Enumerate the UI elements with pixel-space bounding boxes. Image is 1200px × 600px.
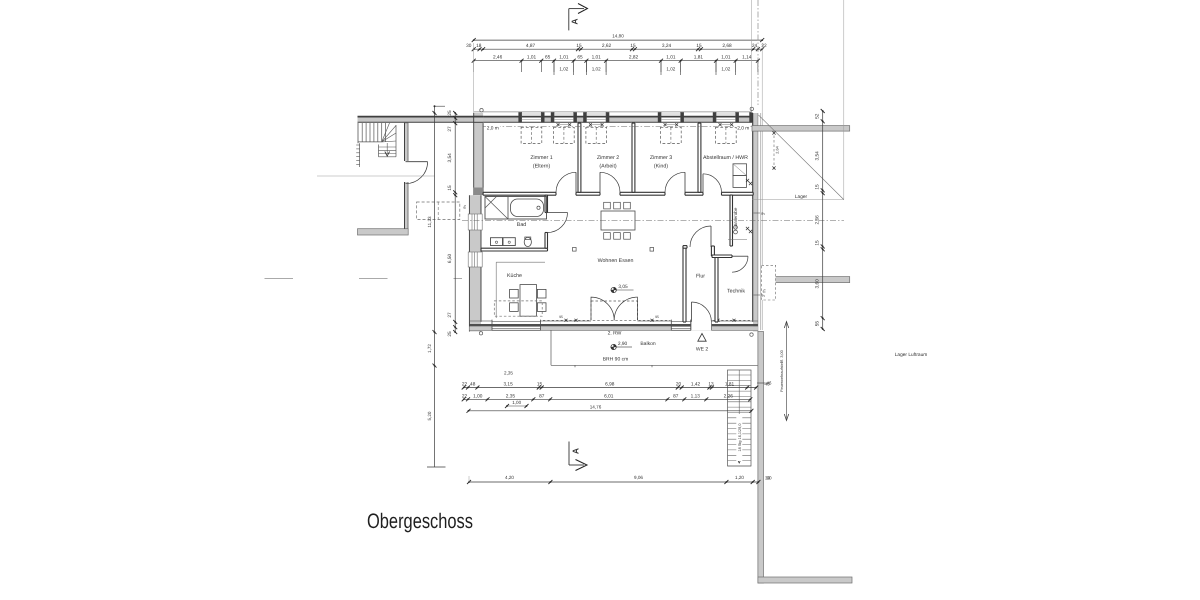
svg-text:2,0 m: 2,0 m (487, 125, 499, 131)
svg-text:65: 65 (545, 55, 551, 61)
svg-text:1,00: 1,00 (512, 400, 521, 405)
svg-text:Technik: Technik (727, 289, 745, 295)
svg-text:1,02: 1,02 (721, 67, 730, 72)
svg-text:1,01: 1,01 (666, 55, 676, 61)
svg-text:3,60: 3,60 (815, 279, 821, 289)
svg-text:1,02: 1,02 (666, 67, 675, 72)
svg-text:1,14: 1,14 (742, 55, 752, 61)
svg-text:(Kind): (Kind) (654, 164, 668, 170)
svg-text:11,23: 11,23 (427, 216, 432, 228)
svg-text:3,15: 3,15 (503, 382, 513, 388)
svg-text:30: 30 (766, 476, 772, 481)
svg-text:Bad: Bad (517, 222, 526, 228)
svg-text:Wohnen Essen: Wohnen Essen (598, 258, 634, 264)
svg-text:Flur: Flur (696, 274, 705, 280)
svg-text:15: 15 (537, 382, 543, 388)
svg-text:(Eltern): (Eltern) (533, 164, 551, 170)
svg-text:15: 15 (630, 43, 636, 49)
svg-text:1,81: 1,81 (694, 55, 704, 61)
svg-text:2. RW: 2. RW (608, 330, 622, 336)
svg-text:fh: fh (463, 205, 467, 208)
svg-text:Küche: Küche (507, 273, 522, 279)
svg-text:95: 95 (559, 315, 563, 319)
svg-text:4,87: 4,87 (526, 43, 536, 49)
svg-text:Feuerwehraufstellfl. 3,00: Feuerwehraufstellfl. 3,00 (780, 350, 784, 392)
svg-text:30: 30 (466, 43, 472, 49)
svg-text:1,02: 1,02 (559, 67, 568, 72)
svg-text:22: 22 (462, 393, 468, 399)
svg-text:2,62: 2,62 (602, 43, 612, 49)
svg-text:55: 55 (815, 321, 821, 327)
svg-text:fh: fh (761, 294, 764, 298)
svg-text:A: A (570, 18, 580, 24)
svg-text:WE 2: WE 2 (696, 347, 708, 353)
svg-text:52: 52 (815, 113, 821, 119)
svg-text:1,02: 1,02 (592, 67, 601, 72)
svg-text:2,0 m: 2,0 m (737, 125, 749, 131)
svg-text:24: 24 (752, 43, 758, 49)
svg-text:Zimmer 3: Zimmer 3 (650, 155, 672, 161)
svg-text:65: 65 (577, 55, 583, 61)
svg-text:Abstellraum / HWR: Abstellraum / HWR (703, 155, 748, 161)
svg-text:22: 22 (462, 382, 468, 388)
svg-text:1,00: 1,00 (473, 393, 483, 399)
svg-text:2,46: 2,46 (493, 55, 503, 61)
svg-text:2,66: 2,66 (815, 215, 821, 225)
svg-text:1,42: 1,42 (691, 382, 701, 388)
svg-text:18 Stg 16,1/29,0: 18 Stg 16,1/29,0 (738, 424, 742, 452)
svg-text:5,20: 5,20 (427, 411, 432, 420)
svg-text:48: 48 (470, 382, 476, 388)
svg-text:Obergeschoss: Obergeschoss (367, 510, 473, 533)
svg-text:87: 87 (539, 393, 545, 399)
svg-text:46: 46 (764, 382, 770, 388)
svg-text:BRH 90 cm: BRH 90 cm (603, 357, 629, 363)
svg-text:4,20: 4,20 (505, 475, 514, 480)
svg-text:3,24: 3,24 (662, 43, 672, 49)
svg-text:6,50: 6,50 (447, 254, 453, 264)
svg-text:15: 15 (447, 185, 453, 191)
svg-text:Lager: Lager (795, 194, 808, 200)
svg-text:9,06: 9,06 (634, 475, 643, 480)
svg-text:fh: fh (761, 212, 764, 216)
svg-text:15: 15 (815, 240, 821, 246)
svg-text:18: 18 (476, 43, 482, 49)
svg-text:2,90: 2,90 (618, 341, 628, 347)
svg-text:1,01: 1,01 (527, 55, 537, 61)
svg-text:2,64: 2,64 (776, 146, 780, 153)
svg-text:1,01: 1,01 (721, 55, 731, 61)
svg-text:25: 25 (447, 331, 453, 337)
svg-text:1,13: 1,13 (691, 393, 701, 399)
svg-text:27: 27 (447, 126, 453, 132)
svg-text:87: 87 (673, 393, 679, 399)
svg-text:Zimmer 2: Zimmer 2 (597, 155, 619, 161)
svg-text:3,54: 3,54 (815, 151, 821, 161)
svg-text:fh: fh (763, 289, 767, 292)
svg-text:2,82: 2,82 (629, 55, 639, 61)
svg-text:15: 15 (576, 43, 582, 49)
svg-text:6,98: 6,98 (605, 382, 615, 388)
svg-text:27: 27 (447, 312, 453, 318)
svg-text:2,35: 2,35 (506, 393, 516, 399)
svg-text:2,26: 2,26 (724, 393, 734, 399)
svg-text:20: 20 (676, 382, 682, 388)
svg-text:14,76: 14,76 (590, 405, 602, 410)
svg-text:95: 95 (655, 315, 659, 319)
svg-text:3,54: 3,54 (447, 153, 453, 163)
svg-text:15: 15 (696, 43, 702, 49)
svg-text:Lager Luftraum: Lager Luftraum (895, 352, 928, 358)
svg-text:Zimmer 1: Zimmer 1 (530, 155, 552, 161)
svg-text:(Arbeit): (Arbeit) (599, 164, 617, 170)
svg-text:3,05: 3,05 (618, 284, 628, 290)
svg-text:1,01: 1,01 (559, 55, 569, 61)
svg-text:Balkon: Balkon (640, 341, 656, 347)
svg-text:15: 15 (815, 184, 821, 190)
svg-text:6,01: 6,01 (604, 393, 614, 399)
svg-text:25: 25 (447, 110, 453, 116)
svg-text:1,81: 1,81 (725, 382, 735, 388)
svg-text:1,20: 1,20 (735, 475, 744, 480)
svg-text:2,68: 2,68 (722, 43, 732, 49)
svg-text:1,01: 1,01 (592, 55, 602, 61)
svg-text:1,72: 1,72 (427, 344, 432, 353)
svg-text:13: 13 (708, 382, 714, 388)
svg-text:14,80: 14,80 (612, 34, 624, 39)
svg-text:A: A (571, 448, 581, 454)
svg-text:2,35: 2,35 (504, 371, 513, 376)
